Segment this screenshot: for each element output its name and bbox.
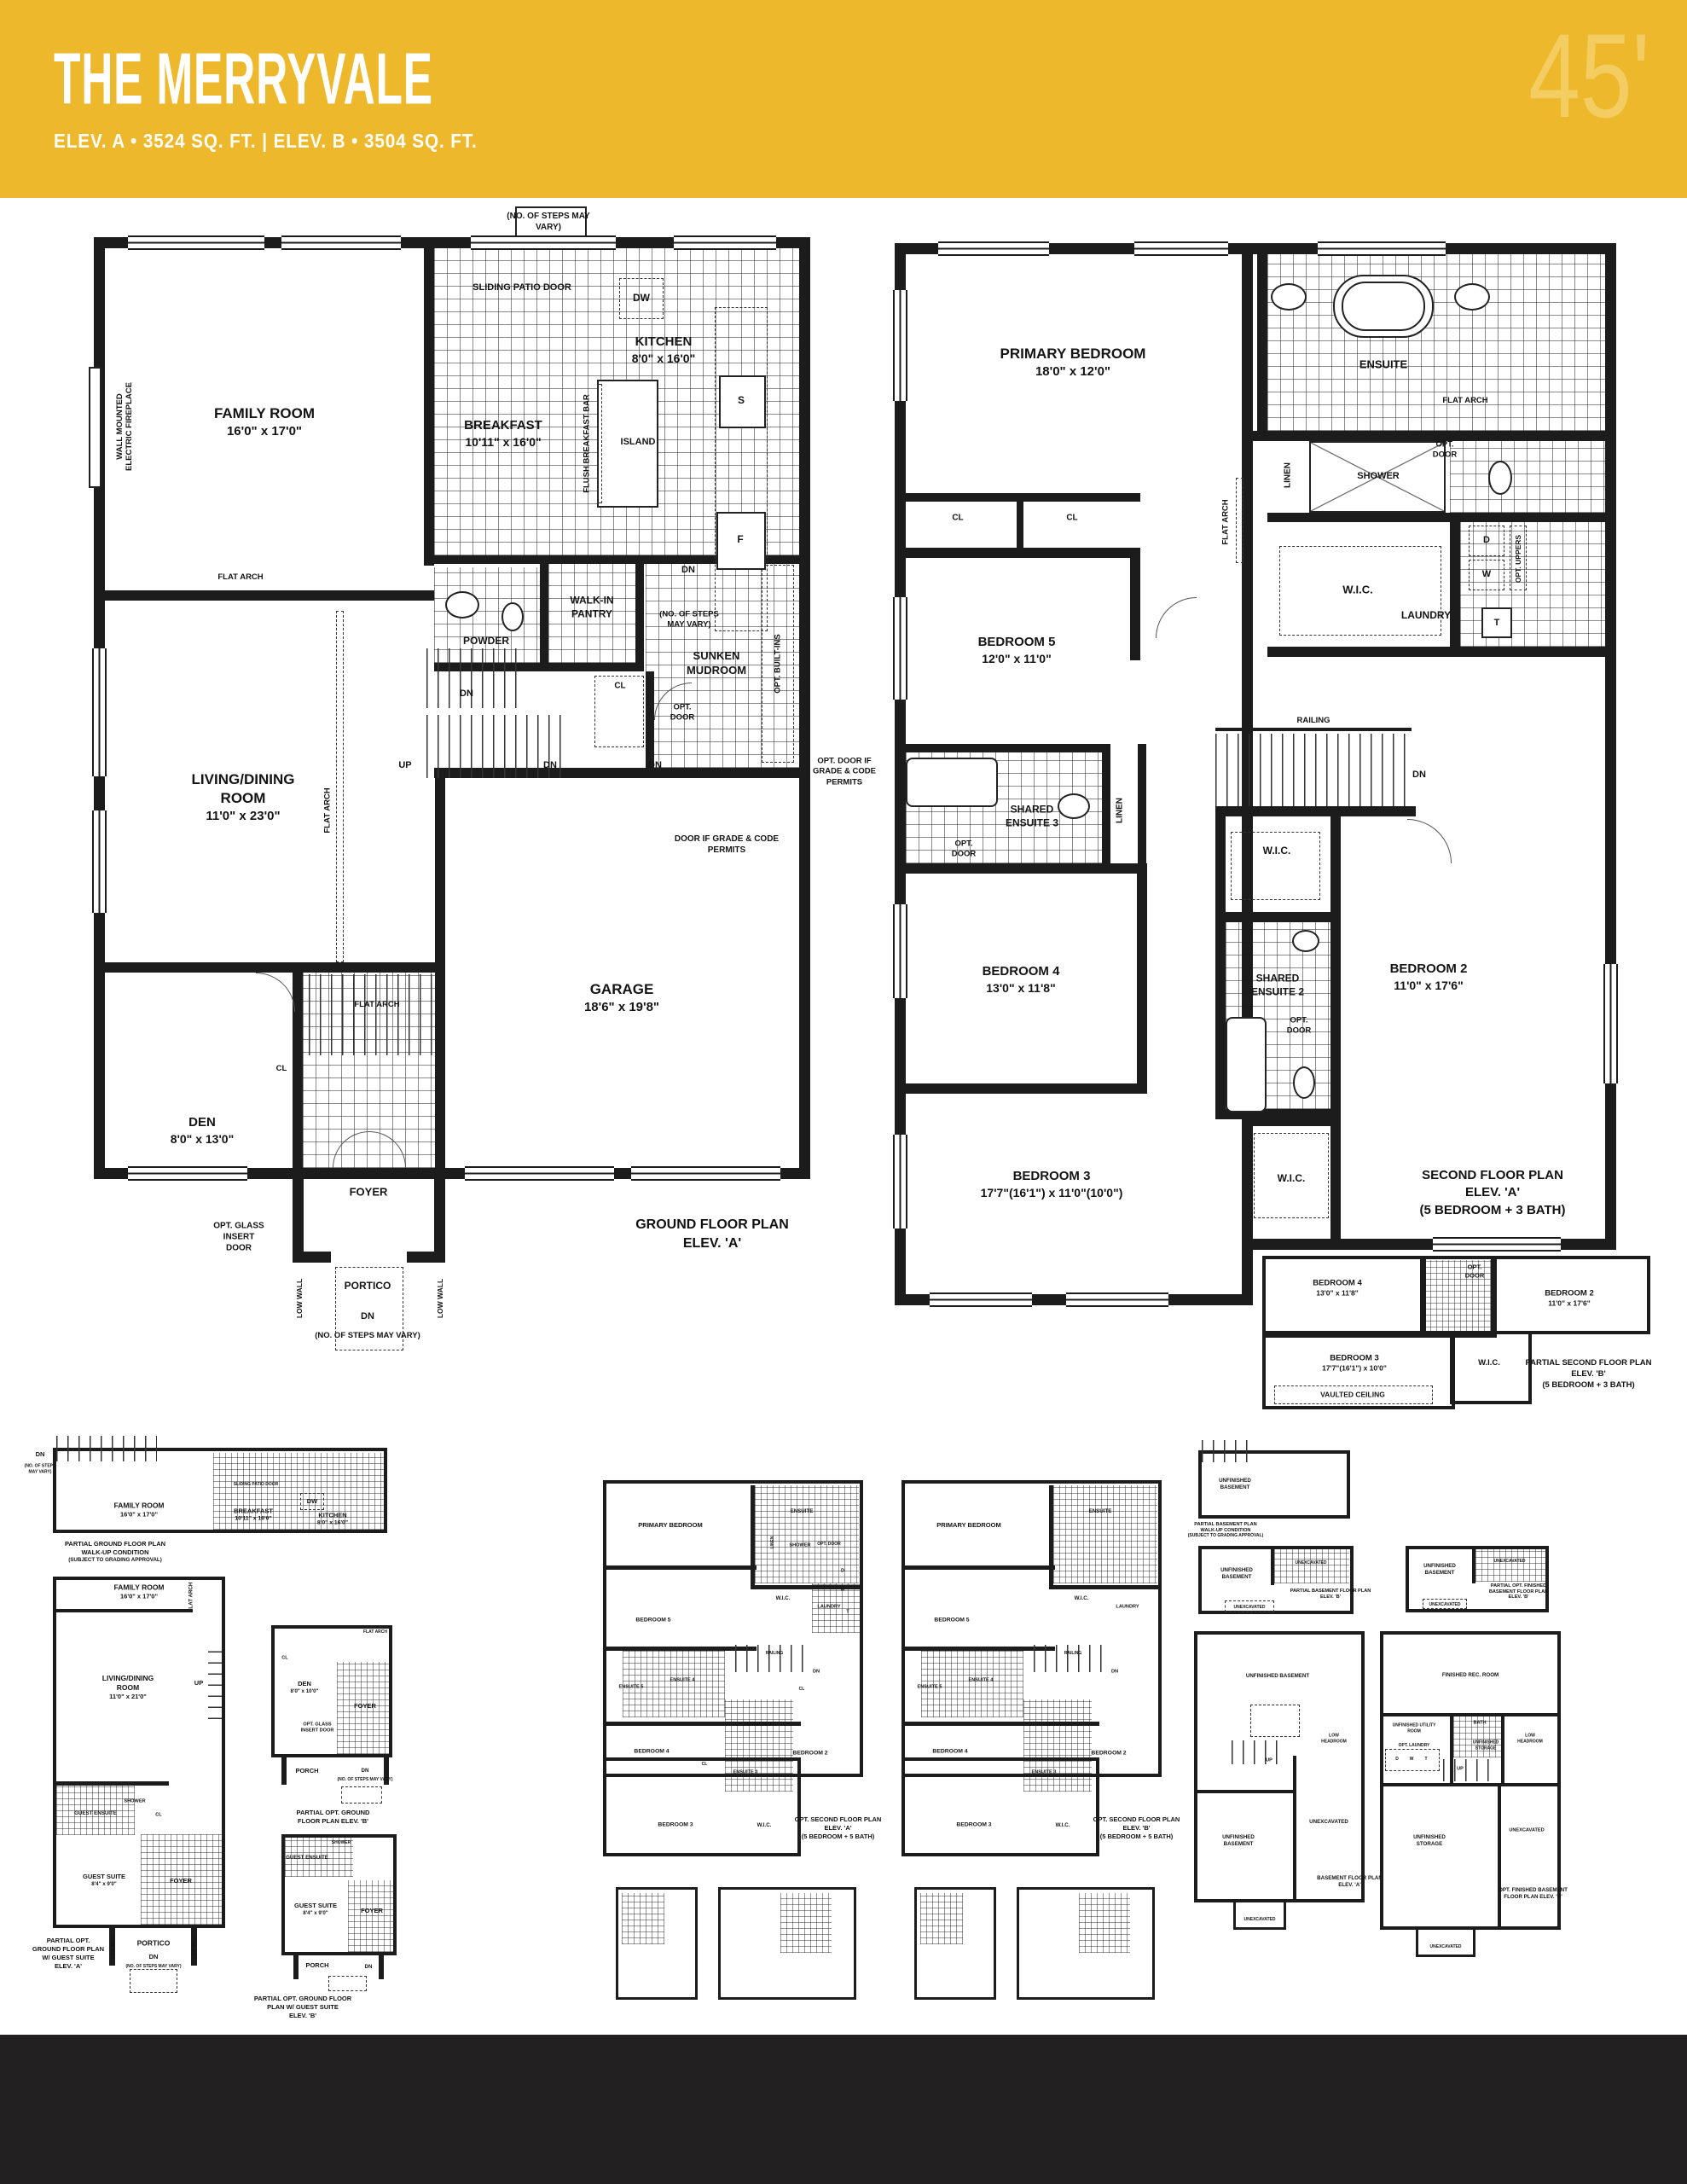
foyer-stairs	[309, 974, 435, 1055]
shower-label: SHOWER	[1357, 470, 1400, 482]
label-line: SHARED	[1251, 972, 1304, 985]
wic-label: W.I.C.	[1075, 1595, 1089, 1602]
unexcavated-label: UNEXCAVATED	[1494, 1559, 1526, 1565]
room-name: LIVING/DINING ROOM	[171, 770, 316, 808]
bed4-label: BEDROOM 4	[634, 1749, 669, 1757]
unfinished-label: UNFINISHED BASEMENT	[1244, 1673, 1312, 1680]
room-name: GARAGE	[584, 980, 659, 999]
room-dims: 11'0" x 21'0"	[102, 1693, 154, 1701]
unexcavated-label: UNEXCAVATED	[1303, 1819, 1354, 1826]
sink	[1292, 930, 1319, 952]
dn-label: DN	[1111, 1669, 1118, 1675]
tile	[1079, 1893, 1130, 1953]
wall-segment	[424, 248, 434, 566]
window-marker	[1433, 1237, 1561, 1252]
storage-label: UNFINISHED STORAGE	[1464, 1740, 1507, 1751]
laundry-tub-label: T	[1494, 617, 1500, 629]
window-marker	[1603, 964, 1618, 1083]
t-label: T	[846, 1609, 849, 1615]
ensuite-tub-inner	[1342, 282, 1425, 331]
porch-wall	[293, 1955, 299, 1979]
stairs	[1202, 1440, 1249, 1462]
label-line: OPT.	[952, 839, 977, 850]
caption-line: PARTIAL BASEMENT PLAN	[1170, 1522, 1281, 1528]
room-dims: 8'0" x 16'0"	[632, 351, 695, 366]
wic-label: W.I.C.	[757, 1822, 772, 1829]
room-dims: 8'0" x 13'0"	[171, 1131, 234, 1147]
room-label-family: FAMILY ROOM16'0" x 17'0"	[113, 1583, 164, 1601]
steps-note: (NO. OF STEPS MAY VARY)	[315, 1331, 420, 1341]
portico-label: PORTICO	[137, 1938, 171, 1948]
guest-ensuite-label: GUEST ENSUITE	[283, 1855, 331, 1862]
lot-frontage: 45'	[1528, 7, 1649, 145]
up-label: UP	[194, 1679, 203, 1687]
steps-note: (NO. OF STEPS MAY VARY)	[650, 610, 728, 631]
foyer-label: FOYER	[354, 1702, 376, 1711]
dw-label: DW	[307, 1497, 318, 1506]
ens5-label: ENSUITE 5	[613, 1684, 649, 1690]
label-line: MUDROOM	[687, 664, 746, 678]
wall-segment	[1380, 1783, 1561, 1786]
room-label-living: LIVING/DININGROOM11'0" x 21'0"	[102, 1674, 154, 1701]
caption-line: PARTIAL OPT.	[4, 1937, 132, 1945]
ens2-label: ENSUITE 2	[741, 1722, 777, 1728]
unfinished-label: UNFINISHED BASEMENT	[1206, 1567, 1267, 1581]
room-name: BEDROOM 5	[978, 634, 1056, 651]
stairs-dn	[1215, 734, 1407, 806]
dn-label: DN	[543, 759, 557, 771]
caption-line: ELEV. 'B'	[1279, 1594, 1382, 1600]
wall-segment	[94, 962, 445, 973]
partial-plan-thumb	[616, 1887, 698, 2000]
stairs	[1443, 1759, 1496, 1781]
label-line: DOOR	[952, 850, 977, 860]
caption-line: SECOND FLOOR PLAN	[1399, 1167, 1586, 1184]
room-dims: 10'11" x 16'0"	[234, 1515, 273, 1523]
ens3-label: ENSUITE 3	[728, 1769, 763, 1775]
ensuite-tile	[1053, 1485, 1157, 1583]
wic-label: W.I.C.	[1278, 1172, 1306, 1186]
opt-door-label: OPT.DOOR	[1287, 1016, 1312, 1037]
caption-line: GROUND FLOOR PLAN	[627, 1216, 797, 1234]
room-name: KITCHEN	[317, 1512, 348, 1520]
plan-caption-ground: GROUND FLOOR PLANELEV. 'A'	[627, 1216, 797, 1252]
bath-tile	[725, 1699, 793, 1792]
t-label: T	[1424, 1757, 1427, 1763]
ensuite-label: ENSUITE	[791, 1508, 814, 1515]
flat-arch-label: FLAT ARCH	[1221, 499, 1231, 544]
label-line: WALK-IN	[570, 594, 613, 607]
wall-segment	[1267, 647, 1616, 657]
room-name: PRIMARY BEDROOM	[1000, 345, 1146, 363]
porch-label: PORCH	[295, 1767, 318, 1775]
caption-line: ELEV. 'A'	[4, 1962, 132, 1971]
wall-segment	[1267, 513, 1605, 522]
wall-segment	[1215, 912, 1341, 922]
room-label-kitchen: KITCHEN8'0" x 16'0"	[317, 1512, 348, 1528]
label-line: SHARED	[1006, 803, 1058, 816]
wall-segment	[895, 863, 1147, 874]
low-headroom-label: LOW HEADROOM	[1317, 1734, 1351, 1745]
room-dims: 8'0" x 10'0"	[291, 1688, 319, 1695]
powder-toilet	[501, 602, 524, 631]
window-marker	[674, 235, 776, 250]
window-marker	[938, 241, 1049, 256]
bath-label: BATH	[1473, 1720, 1486, 1726]
wall-segment	[1102, 744, 1110, 872]
window-marker	[128, 235, 264, 250]
laundry-label: LAUNDRY	[1116, 1604, 1139, 1610]
ens3-label: ENSUITE 3	[1026, 1769, 1062, 1775]
foyer-label: FOYER	[361, 1907, 383, 1915]
wall-segment	[603, 1565, 757, 1570]
room-label-bed3: BEDROOM 317'7"(16'1") x 10'0"	[1322, 1353, 1387, 1373]
wall-segment	[94, 590, 434, 601]
room-label-family: FAMILY ROOM16'0" x 17'0"	[113, 1501, 164, 1519]
porch-wall	[281, 1757, 287, 1785]
room-label-bed4: BEDROOM 413'0" x 11'8"	[983, 963, 1060, 996]
dn-label: DN	[362, 1768, 369, 1774]
portico-wall	[434, 1179, 445, 1260]
room-name: BEDROOM 2	[1545, 1288, 1594, 1298]
tile	[1274, 1549, 1349, 1583]
unfinished-label: UNFINISHED BASEMENT	[1211, 1834, 1266, 1848]
d-label: D	[841, 1568, 844, 1574]
wall-segment	[751, 1485, 755, 1588]
up-label: UP	[1266, 1757, 1272, 1763]
caption-line: (5 BEDROOM + 5 BATH)	[772, 1833, 904, 1841]
label-line: DOOR	[1287, 1026, 1312, 1037]
counter-dash	[715, 307, 768, 631]
sink-label: S	[738, 394, 745, 408]
brochure-page: THE MERRYVALE ELEV. A • 3524 SQ. FT. | E…	[0, 0, 1687, 2184]
room-label-den: DEN8'0" x 10'0"	[291, 1680, 319, 1695]
opt-door-label: OPT.DOOR	[952, 839, 977, 861]
label-line: DOOR	[213, 1243, 264, 1254]
dn-label: DN	[648, 759, 662, 771]
door-grade-label: DOOR IF GRADE & CODE PERMITS	[658, 834, 795, 856]
flat-arch-label: FLAT ARCH	[188, 1583, 194, 1612]
room-dims: 8'4" x 9'0"	[294, 1910, 337, 1917]
label-line: INSERT DOOR	[296, 1728, 339, 1734]
porch-label: PORCH	[305, 1961, 328, 1970]
ens4-label: ENSUITE 4	[664, 1677, 700, 1683]
sink	[1271, 283, 1307, 311]
vaulted-label: VAULTED CEILING	[1320, 1390, 1385, 1399]
sink	[1454, 283, 1490, 311]
opt-door-label: OPT.DOOR	[1465, 1263, 1485, 1280]
unfinished-label: UNFINISHED BASEMENT	[1205, 1478, 1265, 1491]
linen-label: LINEN	[1284, 462, 1293, 488]
ensuite-tile	[1267, 254, 1605, 431]
opt-door-label: OPT.DOOR	[1433, 440, 1458, 462]
caption-line: ELEV. 'B'	[1465, 1594, 1572, 1600]
elevation-sqft-subtitle: ELEV. A • 3524 SQ. FT. | ELEV. B • 3504 …	[54, 130, 478, 153]
porch-wall	[379, 1955, 384, 1979]
sink	[1058, 793, 1090, 819]
railing-line	[1215, 728, 1412, 731]
bath-ri-dash	[1250, 1705, 1300, 1737]
bed2-label: BEDROOM 2	[792, 1751, 827, 1758]
flat-arch-dash	[1236, 478, 1244, 563]
plan-caption: OPT. SECOND FLOOR PLANELEV. 'B'(5 BEDROO…	[1070, 1815, 1203, 1841]
sliding-patio-door-label: SLIDING PATIO DOOR	[472, 282, 571, 293]
dn-label: DN	[813, 1669, 820, 1675]
caption-line: PARTIAL SECOND FLOOR PLAN	[1510, 1358, 1667, 1369]
room-label-foyer: FOYER	[350, 1186, 388, 1200]
railing-label: RAILING	[1296, 716, 1330, 726]
caption-line: GROUND FLOOR PLAN	[4, 1945, 132, 1954]
room-dims: 18'0" x 12'0"	[1000, 363, 1146, 380]
room-label-guest: GUEST SUITE8'4" x 9'0"	[294, 1902, 337, 1917]
linen-label: LINEN	[1116, 798, 1125, 823]
window-marker	[893, 290, 907, 401]
label-line: OPT.	[1465, 1263, 1485, 1271]
wall-segment	[1049, 1585, 1162, 1589]
tub-box	[906, 758, 998, 807]
utility-label: UNFINISHED UTILITY ROOM	[1388, 1723, 1440, 1734]
plan-caption-partial-b: PARTIAL SECOND FLOOR PLANELEV. 'B'(5 BED…	[1510, 1358, 1667, 1391]
laundry-label: LAUNDRY	[1401, 609, 1451, 623]
bed5-label: BEDROOM 5	[635, 1618, 670, 1625]
label-line: OPT.	[1433, 440, 1458, 450]
caption-line: (SUBJECT TO GRADING APPROVAL)	[34, 1557, 196, 1564]
glass-door-label: OPT. GLASSINSERT DOOR	[296, 1722, 339, 1735]
steps-dash	[130, 1969, 177, 1993]
caption-line: PARTIAL OPT. FINISHED	[1465, 1583, 1572, 1589]
unfinished-label: UNFINISHED BASEMENT	[1410, 1563, 1470, 1577]
window-marker	[893, 597, 907, 700]
tile	[920, 1893, 963, 1944]
room-name: BREAKFAST	[464, 417, 542, 434]
glass-door-label: OPT. GLASSINSERTDOOR	[213, 1221, 264, 1254]
room-dims: 13'0" x 11'8"	[983, 980, 1060, 996]
sliding-label: SLIDING PATIO DOOR	[234, 1482, 279, 1488]
wic-label: W.I.C.	[1342, 584, 1372, 598]
dn-label: DN	[681, 564, 695, 576]
room-dims: 12'0" x 11'0"	[978, 651, 1056, 666]
tile	[1475, 1549, 1545, 1582]
steps-dash	[341, 1786, 382, 1804]
d-label: D	[1395, 1757, 1399, 1763]
room-dims: 8'0" x 16'0"	[317, 1519, 348, 1527]
room-label-bed5: BEDROOM 512'0" x 11'0"	[978, 634, 1056, 666]
wall-segment	[1215, 922, 1226, 1119]
label-line: OPT.	[1287, 1016, 1312, 1026]
room-label-se2: SHAREDENSUITE 2	[1251, 972, 1304, 998]
wic-dash	[1231, 832, 1320, 900]
fireplace	[89, 367, 101, 488]
room-dims: 10'11" x 16'0"	[464, 434, 542, 450]
caption-line: BASEMENT FLOOR PLAN	[1465, 1589, 1572, 1595]
closet-label: CL	[952, 513, 963, 524]
dn-label: DN	[36, 1450, 45, 1459]
closet-label: CL	[281, 1655, 287, 1661]
wall-segment	[895, 1083, 1147, 1094]
bed3-label: BEDROOM 3	[956, 1822, 991, 1830]
label-line: ENSUITE 3	[1006, 816, 1058, 830]
bed2-label: BEDROOM 2	[1091, 1751, 1126, 1758]
portico-wall	[407, 1252, 445, 1263]
dn-label: DN	[365, 1964, 373, 1971]
wall-segment	[895, 744, 1108, 752]
wall-segment	[1017, 493, 1023, 553]
dn-label: DN	[1412, 769, 1426, 781]
caption-line: OPT. SECOND FLOOR PLAN	[772, 1815, 904, 1824]
closet-label: CL	[276, 1064, 287, 1074]
room-dims: 13'0" x 11'8"	[1313, 1289, 1362, 1298]
plan-caption: PARTIAL OPT. GROUND FLOORPLAN W/ GUEST S…	[235, 1995, 371, 2020]
caption-line: WALK-UP CONDITION	[34, 1548, 196, 1557]
dn-label: DN	[460, 688, 473, 700]
room-name: BEDROOM 4	[983, 963, 1060, 980]
caption-line: OPT. FINISHED BASEMENT	[1475, 1887, 1591, 1894]
railing-label: RAILING	[766, 1651, 784, 1657]
flush-bar-dash	[597, 384, 602, 503]
caption-line: ELEV. 'A'	[1399, 1184, 1586, 1201]
tile	[780, 1893, 832, 1953]
plan-caption: OPT. SECOND FLOOR PLANELEV. 'A'(5 BEDROO…	[772, 1815, 904, 1841]
caption-line: W/ GUEST SUITE	[4, 1954, 132, 1962]
window-marker	[893, 904, 907, 998]
room-label-breakfast: BREAKFAST10'11" x 16'0"	[234, 1507, 273, 1524]
steps-note: (NO. OF STEPS MAY VARY)	[501, 211, 595, 233]
unexcavated-label: UNEXCAVATED	[1429, 1602, 1461, 1608]
shower-label: SHOWER	[332, 1840, 351, 1846]
room-label-powder: POWDER	[463, 635, 509, 648]
flush-bar-label: FLUSH BREAKFAST BAR	[583, 394, 592, 493]
room-dims: 8'4" x 9'0"	[83, 1881, 125, 1888]
window-marker	[92, 810, 107, 913]
fridge-label: F	[737, 533, 743, 547]
room-dims: 17'7"(16'1") x 11'0"(10'0")	[981, 1185, 1123, 1200]
label-line: OPT.	[670, 703, 695, 713]
w-label: W	[840, 1587, 844, 1593]
wall-segment	[1137, 874, 1147, 1083]
ens4-label: ENSUITE 4	[963, 1677, 999, 1683]
wall-segment	[635, 564, 644, 663]
room-dims: 11'0" x 17'6"	[1390, 978, 1468, 993]
flat-arch-label: FLAT ARCH	[354, 1000, 399, 1010]
caption-line: PARTIAL GROUND FLOOR PLAN	[34, 1540, 196, 1548]
caption-line: ELEV. 'B'	[235, 2012, 371, 2020]
up-label: UP	[1457, 1766, 1464, 1772]
toilet	[1293, 1066, 1315, 1099]
garage-door-marker	[631, 1166, 780, 1181]
island-label: ISLAND	[621, 436, 656, 448]
cl-label: CL	[799, 1687, 805, 1693]
laundry-label: LAUNDRY	[817, 1604, 840, 1610]
partial-plan-thumb	[914, 1887, 996, 2000]
flat-arch-dash	[336, 611, 344, 962]
room-name: FAMILY ROOM	[113, 1583, 164, 1593]
room-label-ensuite: ENSUITE	[1359, 358, 1407, 373]
page-title: THE MERRYVALE	[54, 36, 433, 120]
window-marker	[128, 1166, 247, 1181]
low-wall-label: LOW WALL	[295, 1279, 304, 1318]
room-dims: 18'6" x 19'8"	[584, 999, 659, 1016]
tub-box	[1226, 1017, 1267, 1112]
opt-door-label: OPT. DOOR	[816, 1542, 842, 1548]
label-line: DOOR	[670, 713, 695, 723]
caption-line: ELEV. 'B'	[1510, 1369, 1667, 1380]
up-label: UP	[398, 759, 411, 771]
wall-segment	[1257, 254, 1267, 431]
unexcavated-label: UNEXCAVATED	[1296, 1560, 1327, 1566]
label-line: ELECTRIC FIREPLACE	[125, 382, 134, 471]
toilet	[1488, 461, 1512, 495]
label-line: LIVING/DINING	[102, 1674, 154, 1683]
primary-label: PRIMARY BEDROOM	[936, 1521, 1000, 1530]
flat-arch-label: FLAT ARCH	[363, 1629, 387, 1635]
wall-segment	[1242, 1118, 1341, 1126]
fireplace-label: WALL MOUNTEDELECTRIC FIREPLACE	[115, 382, 134, 471]
room-label-garage: GARAGE18'6" x 19'8"	[584, 980, 659, 1016]
wall-segment	[901, 1647, 1055, 1651]
room-dims: 16'0" x 17'0"	[113, 1511, 164, 1519]
low-wall-label: LOW WALL	[192, 1935, 197, 1958]
window-marker	[930, 1292, 1032, 1307]
guest-ensuite-label: GUEST ENSUITE	[72, 1810, 119, 1817]
ens5-label: ENSUITE 5	[912, 1684, 948, 1690]
window-marker	[1134, 241, 1228, 256]
room-label-bed3: BEDROOM 317'7"(16'1") x 11'0"(10'0")	[981, 1168, 1123, 1200]
room-dims: 11'0" x 17'6"	[1545, 1299, 1594, 1309]
primary-label: PRIMARY BEDROOM	[638, 1521, 702, 1530]
room-name: DEN	[291, 1680, 319, 1688]
label-line: ENSUITE 2	[1251, 985, 1304, 999]
label-line: PANTRY	[570, 607, 613, 621]
label-line: SUNKEN	[687, 649, 746, 664]
room-label-family: FAMILY ROOM16'0" x 17'0"	[214, 404, 315, 440]
room-label-kitchen: KITCHEN8'0" x 16'0"	[632, 334, 695, 366]
unexcavated-label: UNEXCAVATED	[1430, 1944, 1462, 1950]
wic-label: W.I.C.	[776, 1595, 791, 1602]
room-dims: 17'7"(16'1") x 10'0"	[1322, 1364, 1387, 1374]
room-name: BEDROOM 3	[981, 1168, 1123, 1185]
flat-arch-label: FLAT ARCH	[1442, 396, 1487, 406]
opt-door-label: OPT.DOOR	[670, 703, 695, 724]
window-marker	[1318, 241, 1446, 256]
steps-note: (NO. OF STEPS MAY VARY)	[337, 1777, 392, 1783]
shower-label: SHOWER	[789, 1542, 810, 1548]
label-line: WALL MOUNTED	[115, 382, 125, 471]
stairs	[208, 1651, 222, 1719]
wall-segment	[1049, 1485, 1053, 1588]
dryer-label: D	[1483, 534, 1490, 546]
opt-uppers-label: OPT. UPPERS	[1514, 535, 1522, 583]
caption-line: ELEV. 'A'	[627, 1234, 797, 1253]
low-headroom-label: LOW HEADROOM	[1513, 1734, 1547, 1745]
portico-wall	[293, 1179, 304, 1260]
room-label-den: DEN8'0" x 13'0"	[171, 1114, 234, 1147]
caption-line: FLOOR PLAN ELEV. 'A'	[1475, 1894, 1591, 1901]
stairs-up	[426, 715, 563, 778]
dn-label: DN	[149, 1953, 159, 1961]
caption-line: PARTIAL BASEMENT FLOOR PLAN	[1279, 1589, 1382, 1594]
caption-line: OPT. SECOND FLOOR PLAN	[1070, 1815, 1203, 1824]
room-dims: 16'0" x 17'0"	[113, 1593, 164, 1601]
label-line: DOOR	[1465, 1271, 1485, 1280]
steps-dash	[328, 1976, 367, 1991]
window-marker	[1066, 1292, 1168, 1307]
low-wall-label: LOW WALL	[436, 1279, 444, 1318]
foyer-tile	[348, 1880, 393, 1952]
room-name: BEDROOM 4	[1313, 1278, 1362, 1288]
dw-label: DW	[633, 292, 650, 305]
powder-sink	[445, 591, 479, 619]
caption-line: ELEV. 'A'	[772, 1824, 904, 1833]
